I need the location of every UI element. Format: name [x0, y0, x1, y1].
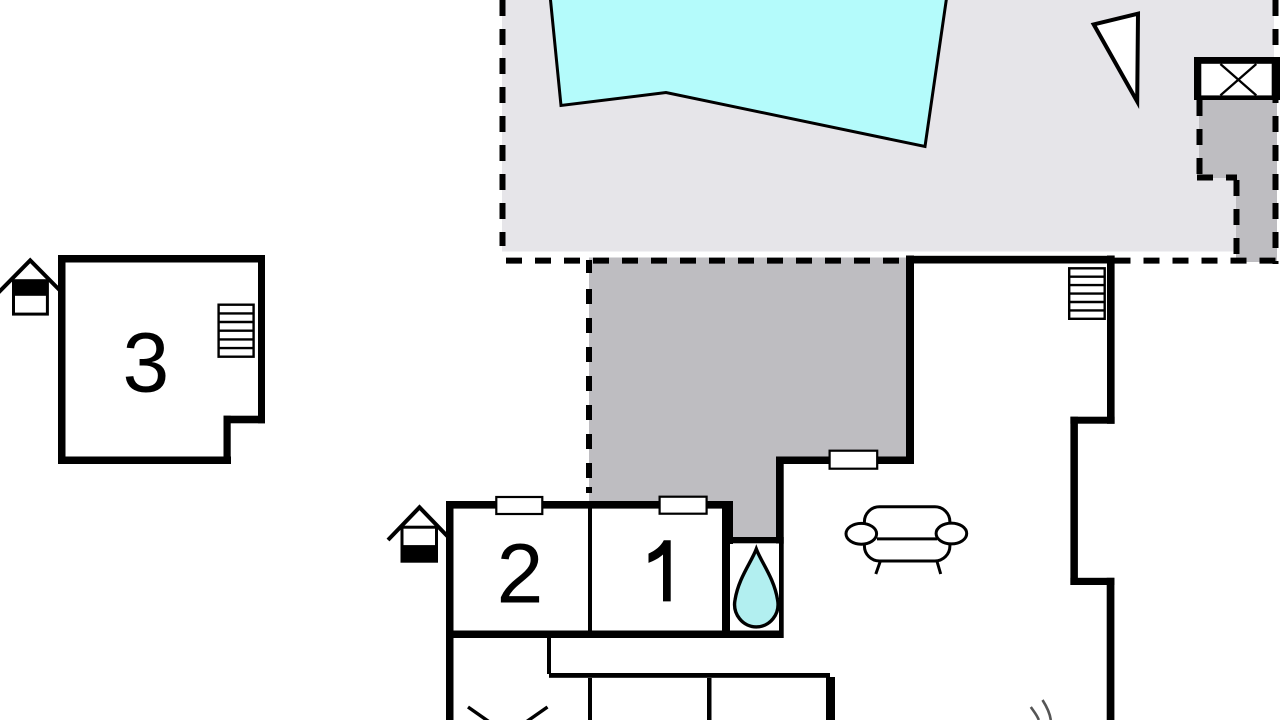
svg-text:3: 3 — [122, 315, 169, 409]
svg-text:2: 2 — [497, 527, 544, 621]
